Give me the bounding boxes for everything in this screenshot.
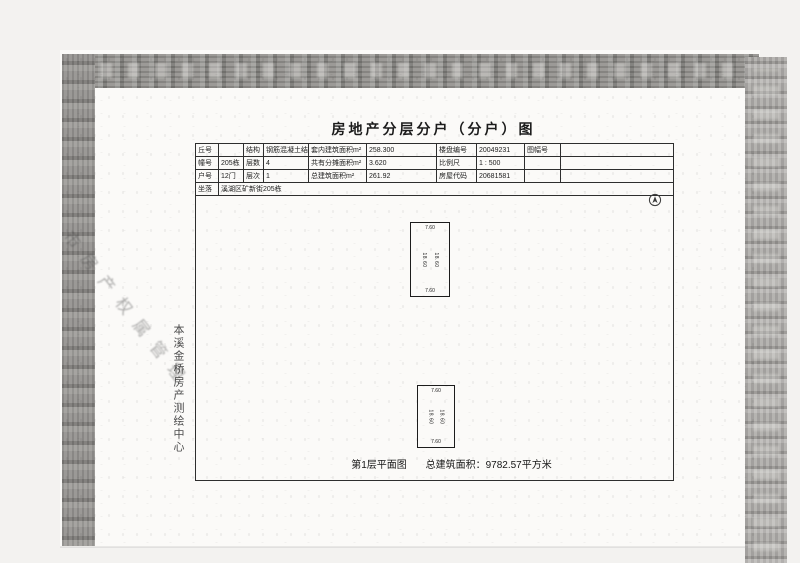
- cell-value: 1 : 500: [477, 157, 525, 170]
- cell-label: 坐落: [196, 183, 219, 196]
- cell-label: 图幅号: [525, 144, 561, 157]
- cell-label: 楼盘编号: [437, 144, 477, 157]
- cell-value: 20049231: [477, 144, 525, 157]
- north-arrow-icon: [648, 193, 662, 207]
- cell-value: [561, 157, 674, 170]
- cell-label: 丘号: [196, 144, 219, 157]
- caption-total-area: 总建筑面积：9782.57平方米: [426, 460, 552, 471]
- cell-label: [525, 170, 561, 183]
- cell-label: 户号: [196, 170, 219, 183]
- cell-label: 共有分摊面积m²: [309, 157, 367, 170]
- unit2-width-bottom: 7.60: [418, 439, 454, 445]
- cell-label: [525, 157, 561, 170]
- cell-label: 层次: [244, 170, 264, 183]
- cell-label: 套内建筑面积m²: [309, 144, 367, 157]
- plan-unit-2: 7.60 18.60 18.60 7.60: [417, 385, 455, 448]
- cell-value: 1: [264, 170, 309, 183]
- cell-label: 幢号: [196, 157, 219, 170]
- caption-floor-label: 第1层平面图: [351, 460, 407, 471]
- plan-unit-1: 7.60 18.60 18.60 7.60: [410, 222, 450, 297]
- property-info-table: 丘号 结构 钢筋混凝土结构 套内建筑面积m² 258.300 楼盘编号 2004…: [195, 143, 674, 196]
- cell-value: 20681581: [477, 170, 525, 183]
- cell-label: 总建筑面积m²: [309, 170, 367, 183]
- cell-value: 205栋: [219, 157, 244, 170]
- table-row: 丘号 结构 钢筋混凝土结构 套内建筑面积m² 258.300 楼盘编号 2004…: [196, 144, 674, 157]
- scan-shadow-right: [745, 57, 787, 563]
- cell-value: 261.92: [367, 170, 437, 183]
- cell-label: 房屋代码: [437, 170, 477, 183]
- cell-value: 258.300: [367, 144, 437, 157]
- page-bottom-edge: [60, 546, 748, 548]
- scan-shadow-top: [64, 54, 759, 88]
- unit1-width-bottom: 7.60: [411, 288, 449, 294]
- cell-value: 4: [264, 157, 309, 170]
- unit1-width-top: 7.60: [411, 225, 449, 231]
- unit1-depth-left: 18.60: [421, 252, 427, 267]
- cell-label: 结构: [244, 144, 264, 157]
- table-row: 户号 12门 层次 1 总建筑面积m² 261.92 房屋代码 20681581: [196, 170, 674, 183]
- cell-value: 3.620: [367, 157, 437, 170]
- cell-value: 钢筋混凝土结构: [264, 144, 309, 157]
- unit1-depth-right: 18.60: [433, 252, 439, 267]
- cell-value: 12门: [219, 170, 244, 183]
- table-row: 坐落 溪湖区矿新街205栋: [196, 183, 674, 196]
- cell-value: [219, 144, 244, 157]
- cell-label: 层数: [244, 157, 264, 170]
- cell-value: [561, 144, 674, 157]
- unit2-depth-left: 18.60: [427, 409, 433, 424]
- surveying-center-stamp: 本溪金桥房产测绘中心: [170, 324, 186, 454]
- cell-address: 溪湖区矿新街205栋: [219, 183, 674, 196]
- unit2-width-top: 7.60: [418, 388, 454, 394]
- document-title: 房地产分层分户（分户）图: [195, 119, 672, 139]
- cell-label: 比例尺: [437, 157, 477, 170]
- cell-value: [561, 170, 674, 183]
- floor-plan-caption: 第1层平面图 总建筑面积：9782.57平方米: [213, 456, 690, 471]
- table-row: 幢号 205栋 层数 4 共有分摊面积m² 3.620 比例尺 1 : 500: [196, 157, 674, 170]
- scan-shadow-left: [62, 54, 95, 546]
- unit2-depth-right: 18.60: [439, 409, 445, 424]
